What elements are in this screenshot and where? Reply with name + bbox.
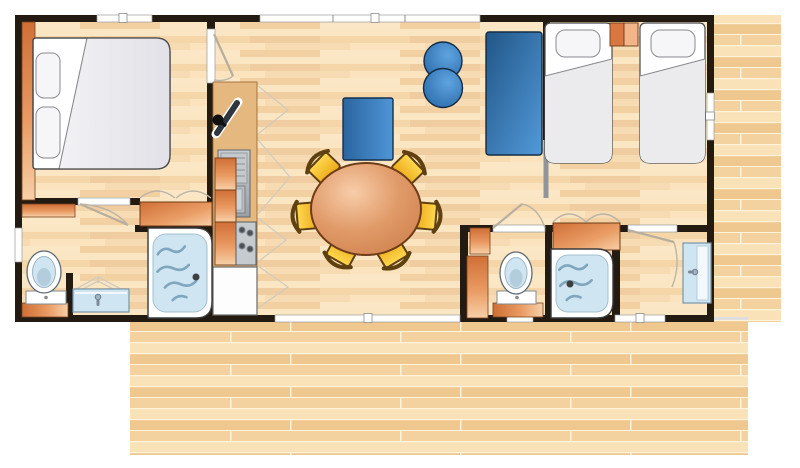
- toilet1-base: [22, 303, 68, 317]
- window-bedroom1-tick: [119, 14, 127, 23]
- basin1-faucet: [95, 294, 101, 300]
- duvet: [640, 59, 705, 163]
- kitchen: [213, 82, 258, 315]
- door-wc2: [493, 225, 545, 232]
- bay-window-tick: [371, 14, 379, 23]
- washbasin-2: [683, 243, 711, 303]
- single-bed-b: [640, 23, 705, 163]
- bathroom1-shelf: [22, 204, 75, 217]
- patio-door-tick: [364, 314, 372, 323]
- toilet2-water: [510, 269, 523, 287]
- kitchen-cabinets: [215, 158, 236, 265]
- pillow: [651, 30, 695, 57]
- deck-side-strip: [714, 15, 781, 322]
- toilet1-water: [37, 268, 51, 286]
- closet-bifold: [140, 202, 212, 226]
- pillow: [36, 53, 60, 98]
- fridge: [213, 267, 257, 315]
- toilet2-flush: [515, 296, 519, 300]
- shower2-drain: [567, 281, 574, 288]
- single-bed-a: [545, 23, 612, 163]
- floor-plan-drawing: [0, 0, 800, 468]
- pouf: [424, 69, 463, 108]
- window-washroom2-tick: [636, 314, 644, 323]
- washbasin-1: [73, 289, 129, 312]
- shower1-drain: [193, 274, 200, 281]
- deck-main: [130, 322, 748, 455]
- wardrobe-2: [553, 223, 620, 250]
- door-bedroom1: [207, 29, 215, 83]
- sofa: [343, 98, 393, 160]
- shower-1: [148, 228, 212, 318]
- wc2-cabinet-tall: [467, 256, 488, 318]
- wall-left: [15, 15, 22, 322]
- dining-table: [311, 163, 421, 255]
- pillow: [556, 30, 600, 57]
- pillow: [36, 107, 60, 158]
- toilet2-base: [493, 303, 543, 317]
- nightstand: [610, 23, 638, 46]
- kitchen-hob: [236, 222, 256, 265]
- shower-2: [551, 249, 613, 318]
- toilet1-flush: [44, 296, 48, 300]
- window-twin-tick: [706, 112, 715, 120]
- basin2-counter: [697, 246, 708, 300]
- bay-window-living: [260, 15, 480, 22]
- window-bathroom1-left: [15, 228, 22, 262]
- blue-wardrobe: [486, 32, 542, 155]
- basin1-spout: [97, 299, 100, 306]
- wc2-cabinet-top: [470, 228, 490, 254]
- duvet: [545, 59, 612, 163]
- floor-plan-page: [0, 0, 800, 468]
- basin2-spout: [688, 271, 694, 274]
